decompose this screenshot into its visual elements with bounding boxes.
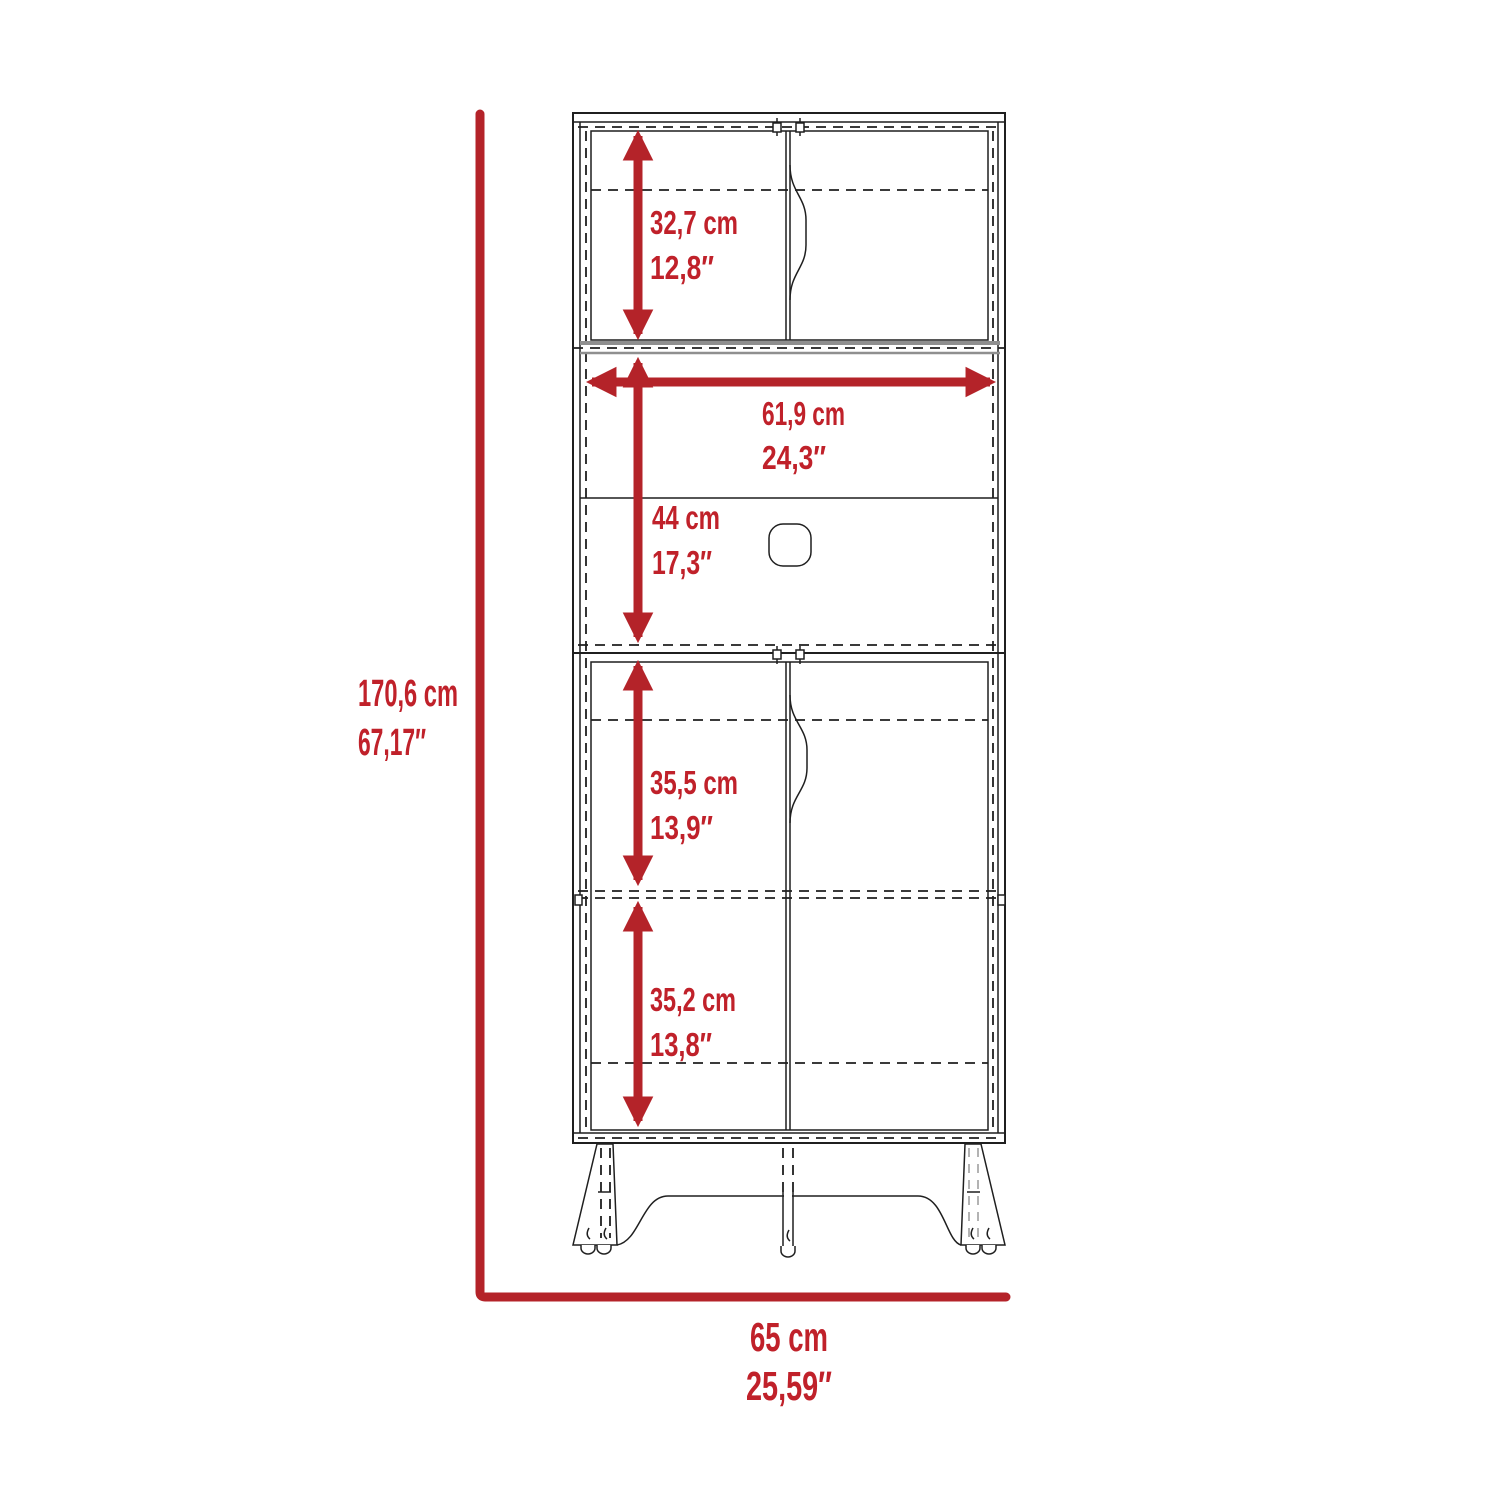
hutch-height-cm-label: 32,7 cm	[650, 204, 738, 241]
upper-interior-in-label: 13,9″	[650, 809, 713, 846]
interior-width-in-label: 24,3″	[762, 439, 826, 476]
left-leg	[573, 1144, 617, 1245]
shelf-pin-left	[575, 895, 582, 905]
interior-width-cm-label: 61,9 cm	[762, 395, 845, 432]
foot-glide-left-b	[597, 1245, 611, 1254]
overall-dimension-line	[480, 114, 1006, 1297]
base-legs	[573, 1144, 1005, 1257]
lower-interior-cm-label: 35,2 cm	[650, 981, 736, 1018]
shelf-pin-right	[998, 895, 1005, 905]
overall-height-cm-label: 170,6 cm	[358, 673, 458, 715]
right-leg	[961, 1144, 1005, 1245]
open-section-in-label: 17,3″	[652, 544, 712, 581]
foot-glide-right-a	[966, 1245, 980, 1254]
overall-height-in-label: 67,17″	[358, 722, 426, 764]
lower-interior-in-label: 13,8″	[650, 1026, 712, 1063]
upper-interior-cm-label: 35,5 cm	[650, 764, 738, 801]
diagram-canvas: 170,6 cm 67,17″ 32,7 cm 12,8″ 61,9 cm 24…	[0, 0, 1503, 1503]
foot-glide-right-b	[982, 1245, 996, 1254]
dimension-annotations: 170,6 cm 67,17″ 32,7 cm 12,8″ 61,9 cm 24…	[358, 114, 1006, 1409]
overall-width-in-label: 25,59″	[746, 1363, 832, 1409]
foot-glide-left-a	[581, 1245, 595, 1254]
hutch-door-handle-curve	[790, 165, 806, 300]
cable-hole	[769, 524, 811, 566]
cabinet-dimension-drawing: 170,6 cm 67,17″ 32,7 cm 12,8″ 61,9 cm 24…	[0, 0, 1503, 1503]
hutch-hinge-left	[773, 118, 781, 136]
overall-width-cm-label: 65 cm	[750, 1314, 828, 1360]
hutch-bottom-panel	[580, 341, 1000, 345]
foot-glide-center	[781, 1246, 795, 1257]
hutch-height-in-label: 12,8″	[650, 249, 714, 286]
open-section-cm-label: 44 cm	[652, 499, 720, 536]
lower-door-handle-curve	[790, 695, 807, 823]
hutch-hinge-right	[796, 118, 804, 136]
